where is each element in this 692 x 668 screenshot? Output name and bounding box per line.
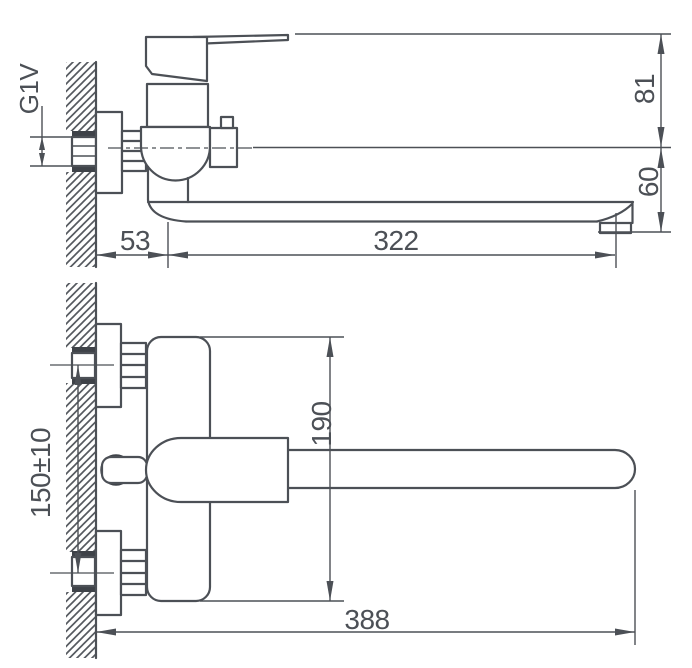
- wall-hatch: [66, 62, 96, 131]
- valve-body-side: [141, 127, 210, 181]
- handle-side: [146, 35, 288, 81]
- wall-hatch: [66, 592, 96, 658]
- arrowhead: [39, 153, 45, 166]
- diverter-side: [210, 117, 237, 167]
- arrowhead: [658, 34, 665, 54]
- arrowhead: [96, 629, 116, 636]
- knob-body: [102, 457, 147, 483]
- dim-label-150: 150±10: [25, 428, 56, 518]
- front-view: 150±10 190 388: [25, 283, 635, 658]
- dim-label-thread: G1V: [14, 63, 44, 115]
- faucet-dimension-drawing: G1V 81 60 53 322: [0, 0, 692, 668]
- arrowhead: [327, 581, 334, 601]
- handle-grip: [146, 37, 207, 81]
- arrowhead: [595, 252, 615, 259]
- cartridge-housing-side: [147, 84, 208, 127]
- escutcheon-side: [96, 112, 122, 193]
- wall-section-front: [66, 283, 96, 658]
- spout-front: [288, 450, 635, 488]
- dim-label-190: 190: [306, 401, 337, 446]
- connector-nut-bottom: [121, 550, 146, 595]
- connector-nut-top: [121, 343, 146, 388]
- spout-tip-curve: [597, 204, 632, 222]
- arrowhead: [148, 252, 168, 259]
- eccentric-nut-side: [72, 137, 96, 166]
- handle-front: [146, 438, 288, 502]
- eccentric-nut-bottom: [72, 557, 95, 586]
- wall-hatch: [66, 383, 96, 552]
- arrowhead: [96, 252, 116, 259]
- arrowhead: [39, 137, 45, 150]
- side-view: G1V 81 60 53 322: [14, 34, 671, 268]
- dim-label-388: 388: [344, 604, 389, 635]
- wall-hatch: [66, 283, 96, 348]
- arrowhead: [658, 127, 665, 147]
- arrowhead: [658, 148, 665, 168]
- arrowhead: [615, 629, 635, 636]
- technical-drawing-page: G1V 81 60 53 322: [0, 0, 692, 668]
- nut-body: [72, 137, 96, 166]
- handle-knob-front: [102, 457, 147, 484]
- dim-thread: G1V: [14, 63, 72, 166]
- spout-side: [148, 167, 633, 233]
- wall-hatch: [66, 172, 96, 267]
- dim-label-53: 53: [120, 225, 150, 256]
- diverter-button: [221, 117, 233, 128]
- arrowhead: [658, 212, 665, 232]
- dim-label-60: 60: [633, 167, 664, 197]
- arrowhead: [327, 337, 334, 357]
- spout-underside-curve: [148, 200, 186, 222]
- dim-label-81: 81: [629, 74, 660, 104]
- dim-label-322: 322: [373, 225, 418, 256]
- arrowhead: [168, 252, 188, 259]
